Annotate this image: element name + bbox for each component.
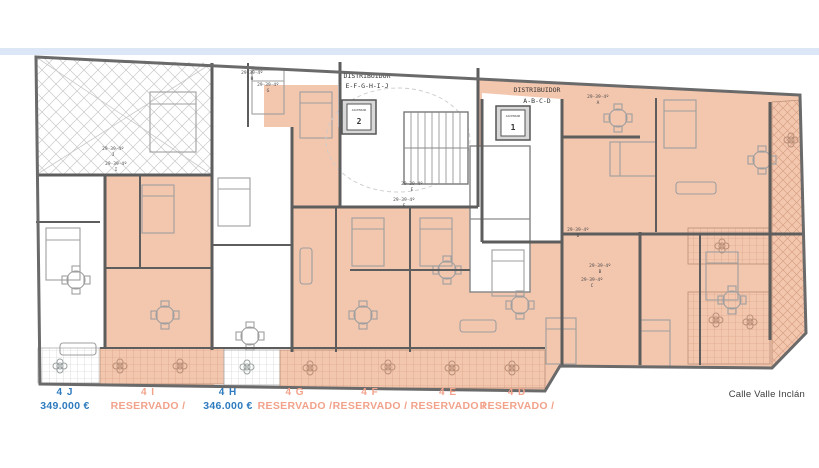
unit-4d-region[interactable] [482,242,562,387]
legend-item-4d[interactable]: 4 D RESERVADO / [462,387,572,413]
distributor-left-units: E-F-G-H-I-J [345,82,388,90]
elevator-2-number: 2 [357,117,362,126]
unit-ref-h-letter: H [251,76,254,82]
unit-4e-region[interactable] [410,207,482,385]
unit-ref-g: 29-39-4º [257,82,279,88]
units-abc-region[interactable] [562,99,800,365]
unit-code: 4 D [462,387,572,400]
unit-ref-g-letter: G [267,88,270,94]
unit-ref-e-letter: E [411,187,414,193]
unit-4f-region[interactable] [336,207,410,385]
unit-legend: 4 J 349.000 € 4 I RESERVADO / 4 H 346.00… [0,387,585,421]
distributor-right-units: A-B-C-D [523,97,550,105]
unit-4j-region[interactable] [36,175,105,385]
elevator-2: ASCENSOR 2 [342,100,376,134]
unit-ref-f: 29-39-4º [393,197,415,203]
elevator-1: ASCENSOR 1 [496,106,530,140]
unit-status: RESERVADO / [462,400,572,413]
unit-ref-h: 29-39-4º [241,70,263,76]
floorplan-page: ASCENSOR 2 ASCENSOR 1 DISTRIBUIDOR E-F-G… [0,0,819,468]
unit-4h-region[interactable] [212,127,292,385]
unit-ref-e: 29-39-4º [401,181,423,187]
unit-4i-region[interactable] [105,100,212,384]
elevator-2-label: ASCENSOR [352,108,367,112]
elevator-1-label: ASCENSOR [506,114,521,118]
unit-4g-region[interactable] [292,207,336,385]
elevator-1-number: 1 [511,123,516,132]
street-name-label: Calle Valle Inclán [729,389,805,400]
distributor-right-title: DISTRIBUIDOR [514,86,561,94]
